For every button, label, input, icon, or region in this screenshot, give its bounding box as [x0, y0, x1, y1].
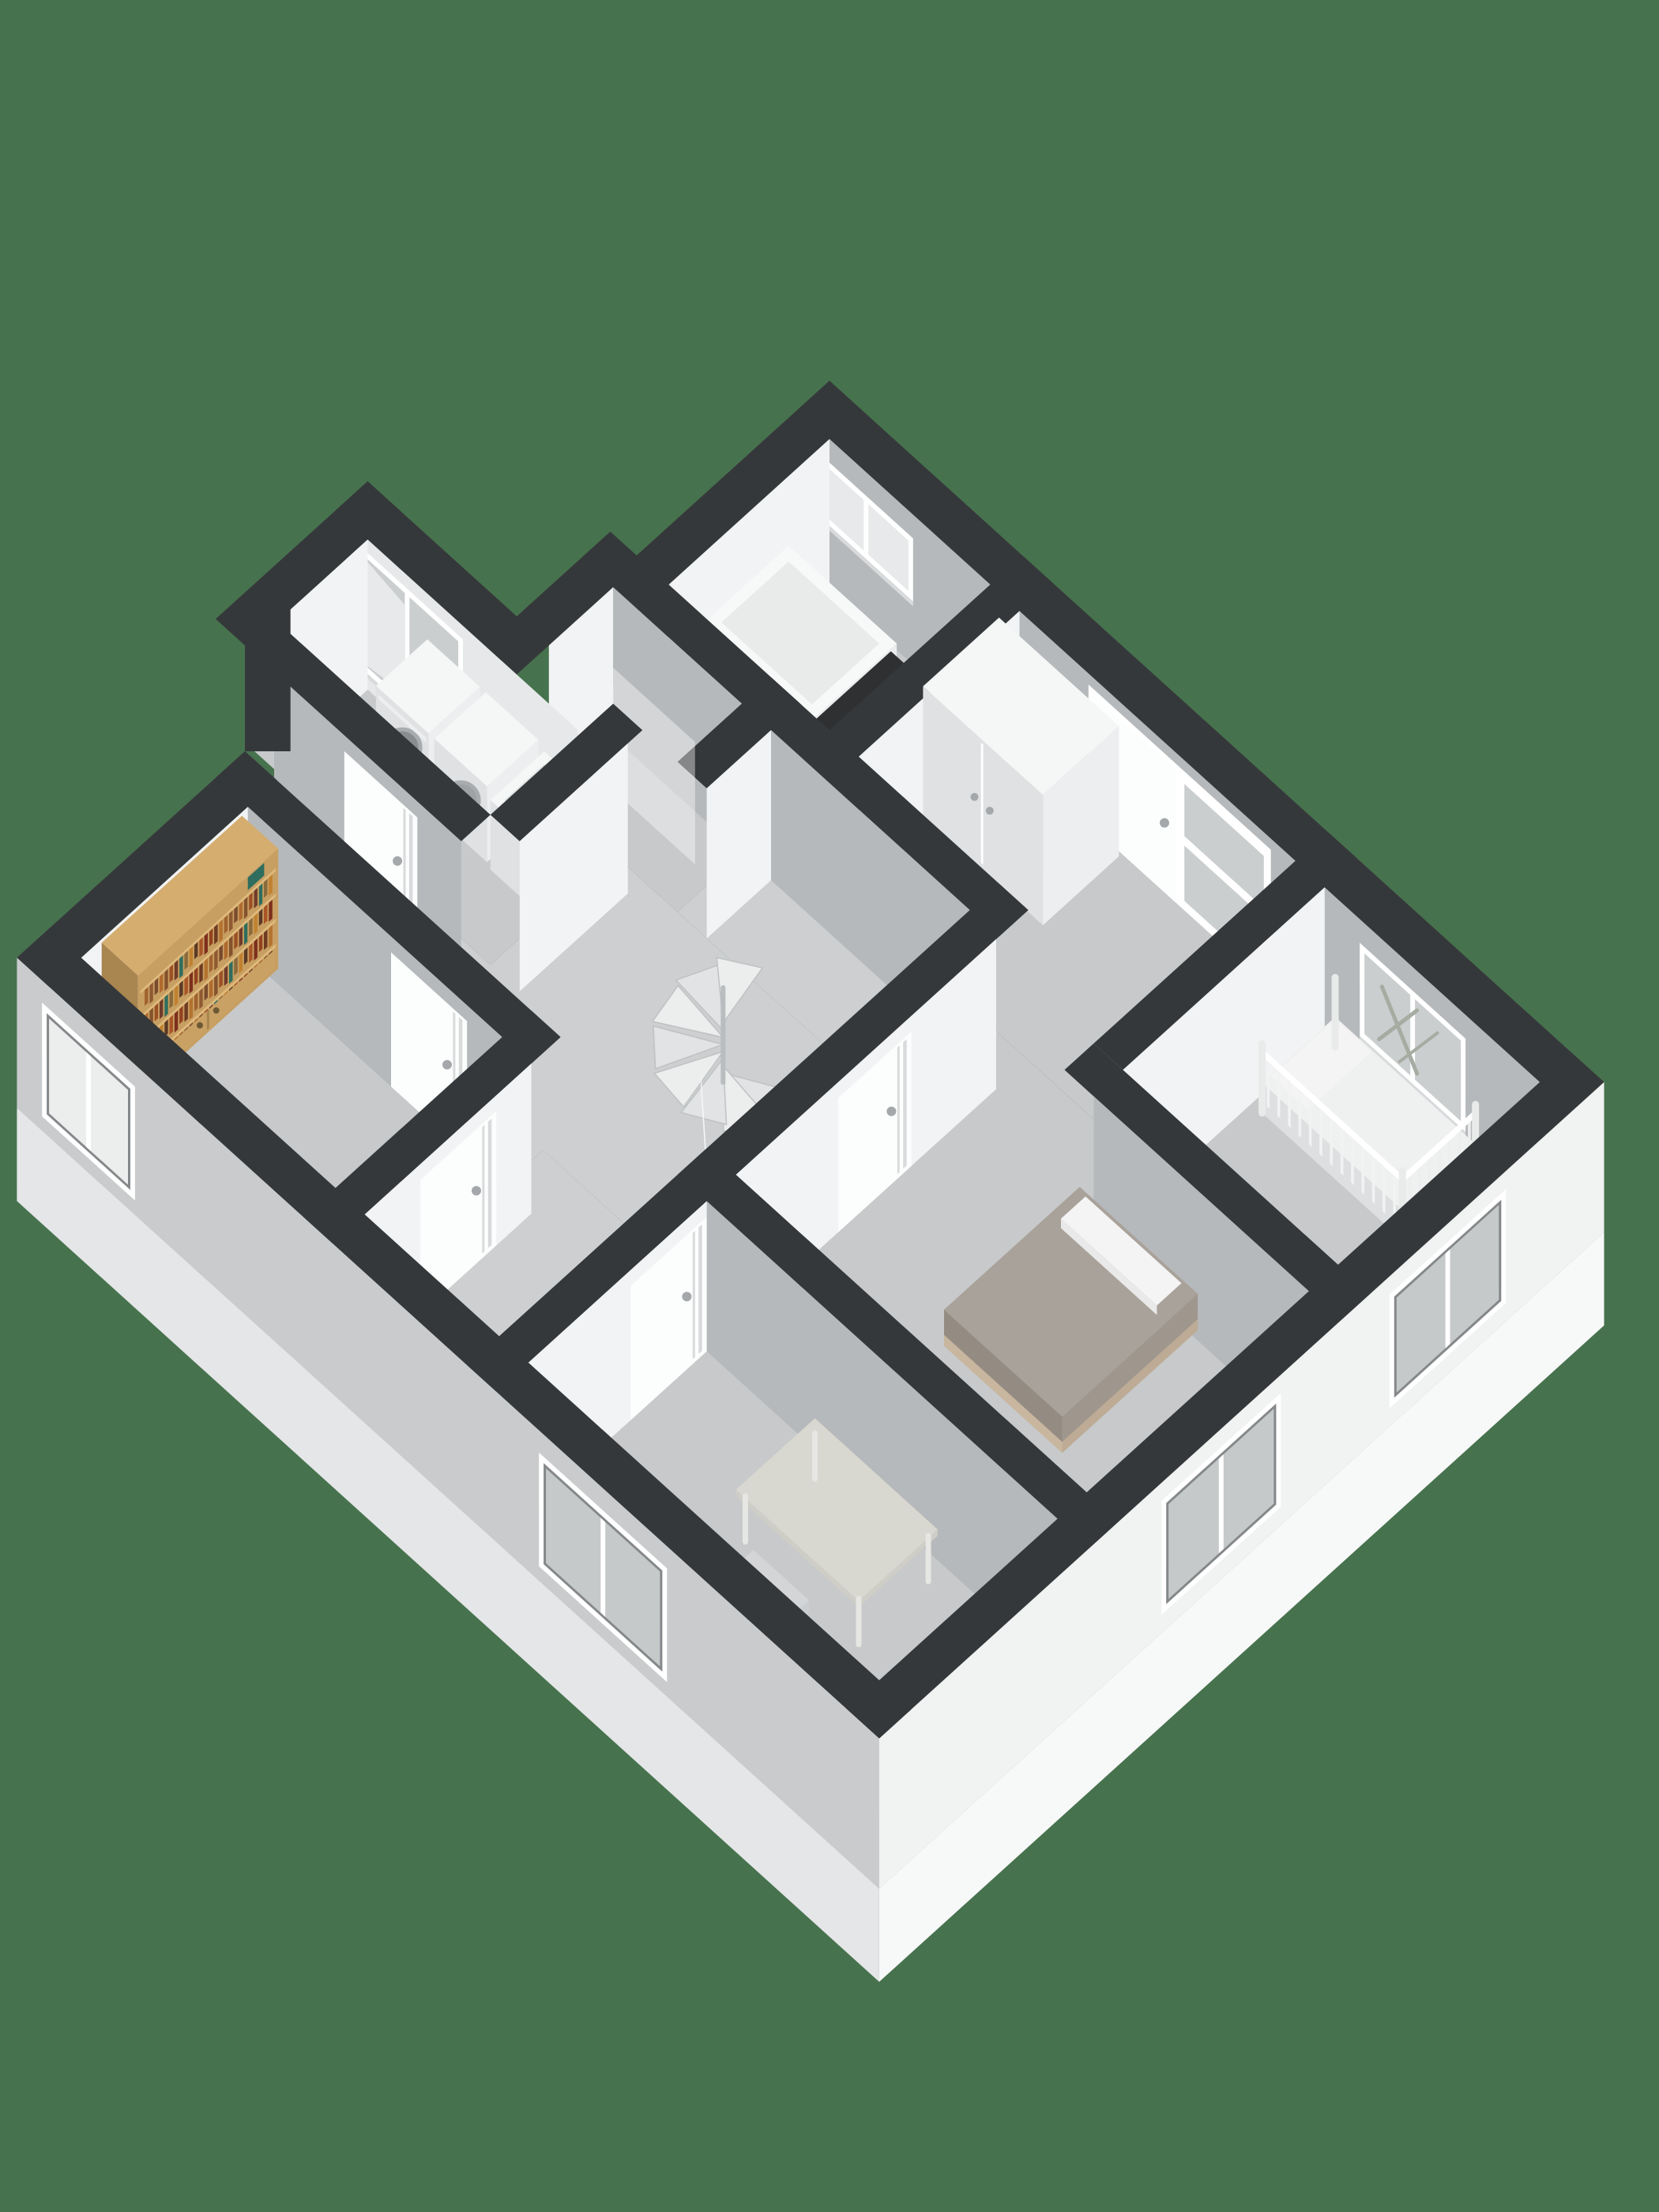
bookshelf [155, 1003, 158, 1021]
bookshelf [249, 943, 252, 963]
bookshelf [175, 985, 179, 1006]
crib [1330, 1118, 1333, 1166]
bookshelf [249, 918, 252, 937]
wardrobe [986, 807, 994, 814]
bookshelf [199, 963, 202, 984]
crib [1319, 1108, 1322, 1157]
bookshelf [175, 960, 179, 980]
bookshelf [239, 952, 243, 973]
bookshelf [205, 933, 208, 955]
bookshelf [164, 969, 167, 991]
bookshelf [214, 924, 218, 944]
bookshelf [145, 987, 148, 1006]
bookshelf [197, 1022, 203, 1029]
bookshelf [184, 951, 188, 970]
bookshelf [194, 992, 197, 1011]
bookshelf [224, 940, 228, 960]
bookshelf [209, 979, 213, 999]
crib [1341, 1127, 1344, 1176]
bookshelf [199, 938, 202, 957]
bookshelf [259, 934, 262, 952]
bookshelf [229, 910, 233, 931]
crib [1382, 1165, 1386, 1213]
crib [1299, 1089, 1302, 1138]
interior-door [886, 1107, 896, 1116]
window [600, 1518, 605, 1616]
bookshelf [184, 976, 188, 996]
bookshelf [269, 875, 273, 896]
bookshelf [219, 920, 223, 942]
interior-door [488, 1119, 492, 1248]
bookshelf [214, 949, 218, 970]
bookshelf [264, 930, 268, 950]
bookshelf [209, 954, 213, 972]
bookshelf [244, 922, 247, 945]
interior-door [903, 1039, 907, 1168]
bookshelf [214, 974, 218, 996]
bookshelf [190, 972, 193, 994]
interior-door [1160, 818, 1169, 828]
stage [0, 0, 1659, 2212]
wall-cap [245, 592, 291, 751]
bookshelf [249, 893, 252, 911]
interior-door [393, 856, 402, 866]
bookshelf [179, 955, 183, 978]
bookshelf [264, 905, 268, 924]
wardrobe [981, 743, 984, 865]
crib [1361, 1146, 1364, 1194]
interior-door [897, 1045, 900, 1174]
bookshelf [229, 935, 233, 957]
bookshelf [175, 1010, 179, 1033]
bookshelf [264, 879, 268, 898]
window [1446, 1249, 1450, 1348]
bookshelf [190, 946, 193, 968]
interior-door [693, 1231, 695, 1360]
bookshelf [254, 888, 258, 908]
floorplan-3d-render [0, 0, 1659, 2212]
bookshelf [190, 997, 193, 1020]
bookshelf [170, 965, 174, 983]
crib [1309, 1099, 1312, 1147]
bookshelf [269, 925, 273, 948]
interior-door [472, 1186, 481, 1195]
bookshelf [254, 913, 258, 935]
bookshelf [194, 967, 197, 985]
bookshelf [259, 883, 262, 906]
bookshelf [205, 958, 208, 981]
bookshelf [179, 1006, 183, 1024]
bookshelf [269, 900, 273, 922]
crib [1277, 1070, 1281, 1118]
bookshelf [229, 961, 233, 984]
crib [1288, 1080, 1291, 1128]
window [86, 1052, 91, 1151]
wardrobe [971, 793, 979, 801]
interior-door [482, 1125, 484, 1254]
bookshelf [184, 1002, 188, 1022]
window [1219, 1454, 1224, 1553]
bookshelf [244, 897, 247, 919]
bookshelf [234, 931, 238, 950]
bookshelf [239, 901, 243, 921]
bookshelf [224, 915, 228, 934]
crib [1372, 1156, 1375, 1204]
bookshelf [170, 990, 174, 1009]
bookshelf [149, 983, 152, 1004]
bookshelf [199, 988, 202, 1010]
interior-door [682, 1292, 691, 1301]
crib [1267, 1060, 1270, 1108]
bookshelf [170, 1015, 174, 1035]
bookshelf [239, 927, 243, 947]
window [863, 500, 868, 555]
crib [1351, 1137, 1354, 1185]
bookshelf [213, 1007, 220, 1014]
bookshelf [164, 994, 167, 1017]
bookshelf [207, 1009, 209, 1030]
interior-door [442, 1060, 452, 1070]
bookshelf [224, 965, 228, 986]
interior-door [698, 1224, 702, 1354]
bookshelf [234, 957, 238, 976]
bookshelf [160, 999, 163, 1019]
bookshelf [254, 939, 258, 961]
bookshelf [160, 973, 163, 993]
